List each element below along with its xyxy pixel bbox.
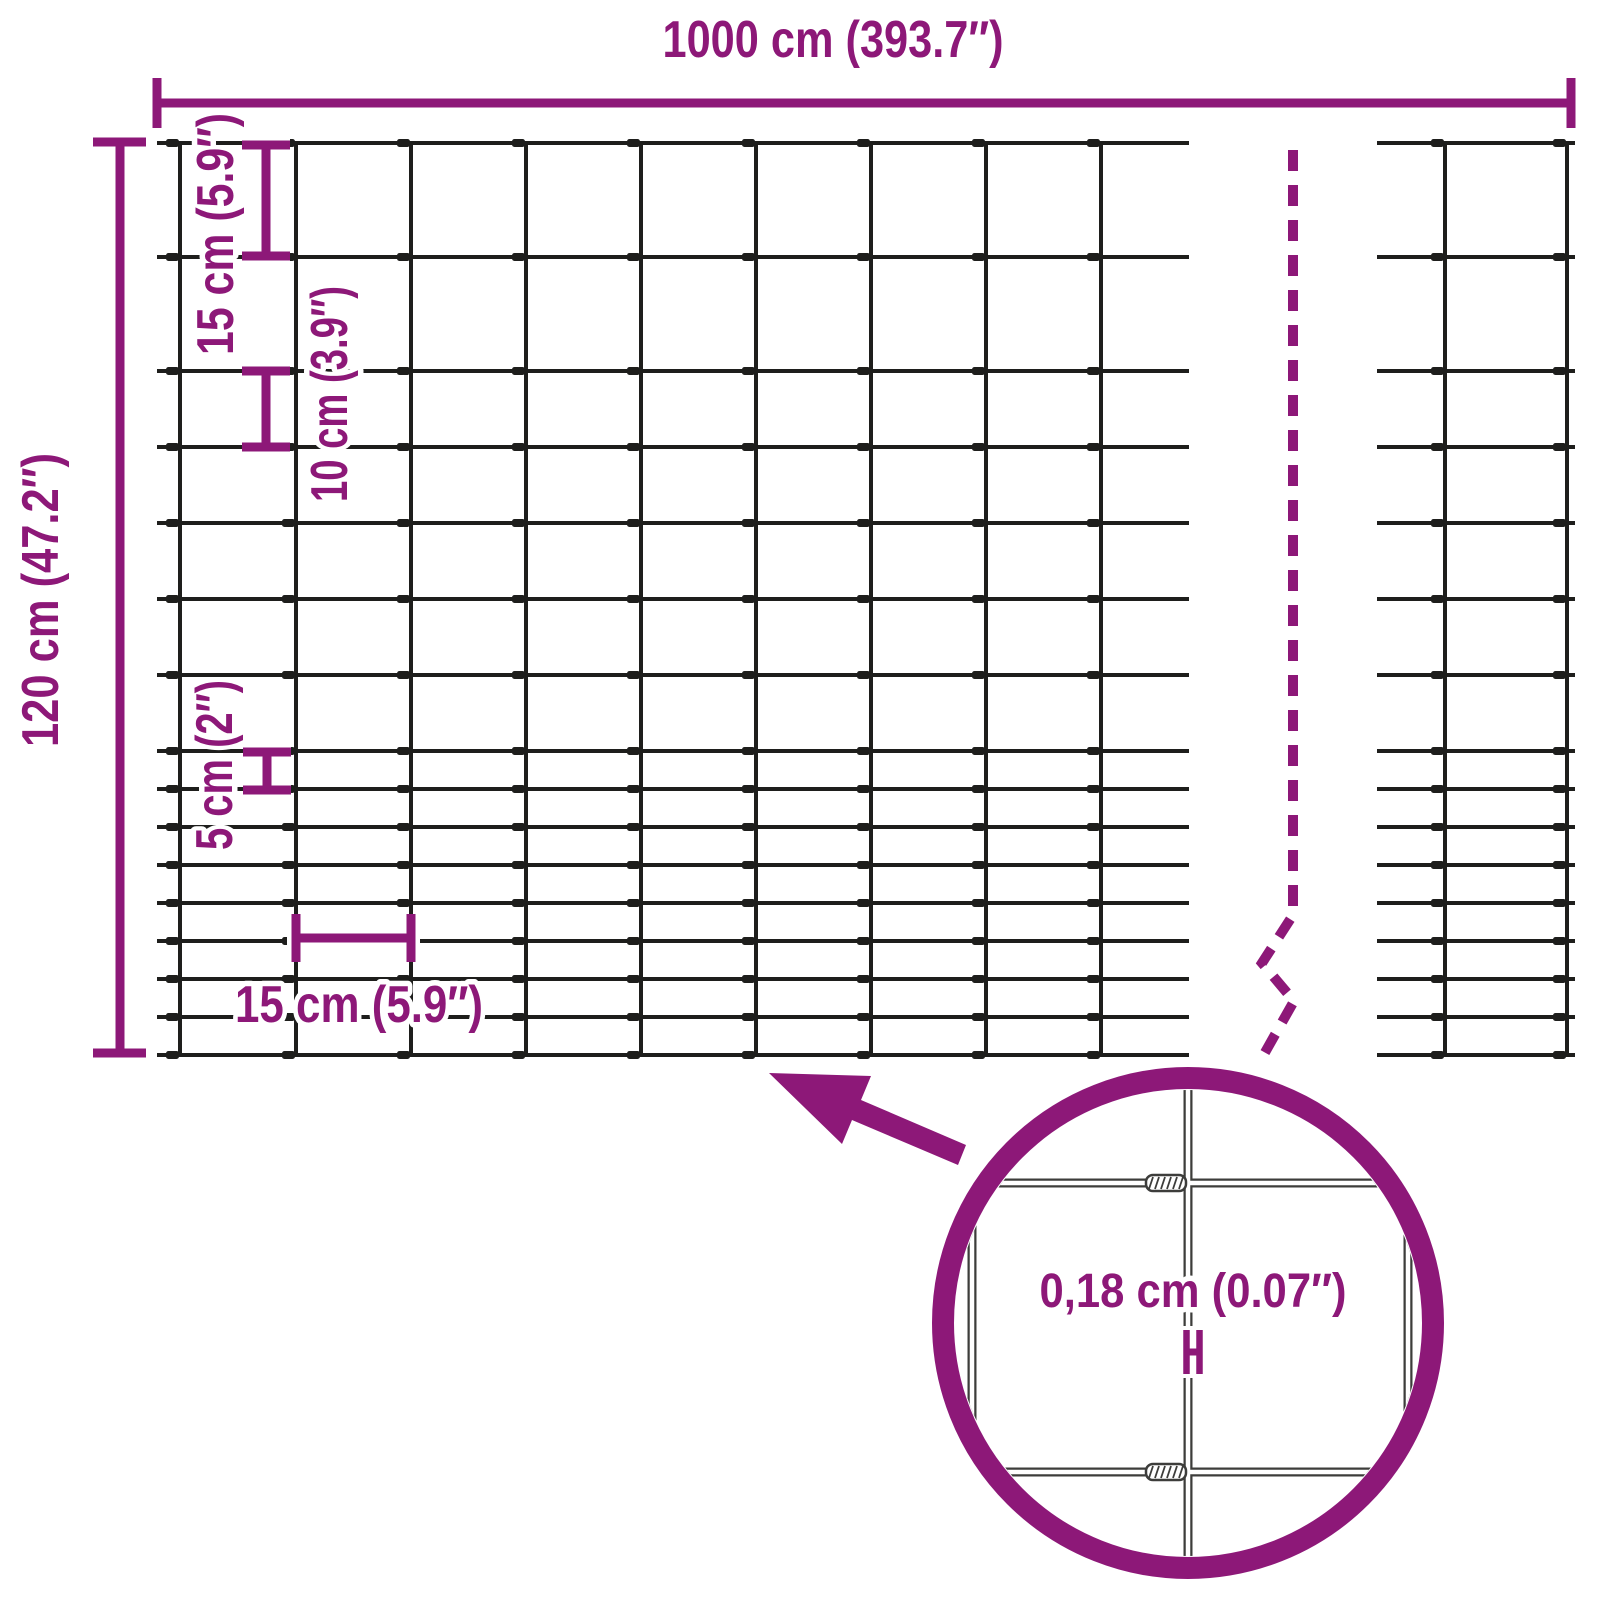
wire-knot-icon <box>627 367 640 375</box>
wire-knot-icon <box>1087 139 1100 147</box>
wire-knot-icon <box>742 823 755 831</box>
wire-knot-icon <box>397 139 410 147</box>
wire-knot-icon <box>972 595 985 603</box>
wire-knot-icon <box>857 861 870 869</box>
wire-knot-icon <box>512 899 525 907</box>
wire-knot-icon <box>1087 595 1100 603</box>
wire-knot-icon <box>972 367 985 375</box>
wire-knot-icon <box>166 671 179 679</box>
wire-knot-icon <box>742 747 755 755</box>
wire-knot-icon <box>627 975 640 983</box>
wire-knot-icon <box>512 823 525 831</box>
wire-knot-icon <box>742 139 755 147</box>
wire-knot-icon <box>166 253 179 261</box>
wire-knot-icon <box>857 595 870 603</box>
wire-knot-icon <box>166 367 179 375</box>
wire-knot-icon <box>1553 443 1566 451</box>
wire-knot-icon <box>166 139 179 147</box>
wire-knot-icon <box>1087 1051 1100 1059</box>
wire-knot-icon <box>1431 937 1444 945</box>
wire-knot-icon <box>627 823 640 831</box>
wire-knot-icon <box>512 861 525 869</box>
wire-knot-icon <box>627 747 640 755</box>
wire-knot-icon <box>1431 1013 1444 1021</box>
wire-knot-icon <box>166 595 179 603</box>
dimension-row-gap-middle: 10 cm (3.9″) <box>242 286 359 502</box>
wire-knot-icon <box>972 899 985 907</box>
wire-knot-icon <box>857 785 870 793</box>
wire-knot-icon <box>166 975 179 983</box>
wire-knot-icon <box>972 861 985 869</box>
wire-knot-icon <box>397 443 410 451</box>
wire-knot-icon <box>742 861 755 869</box>
wire-knot-icon <box>857 671 870 679</box>
wire-knot-icon <box>166 1013 179 1021</box>
wire-knot-icon <box>282 671 295 679</box>
wire-knot-icon <box>1553 671 1566 679</box>
wire-knot-icon <box>166 443 179 451</box>
wire-knot-icon <box>972 519 985 527</box>
wire-knot-icon <box>742 519 755 527</box>
wire-knot-icon <box>512 747 525 755</box>
wire-knot-icon <box>627 1051 640 1059</box>
wire-knot-icon <box>1553 519 1566 527</box>
wire-knot-icon <box>742 785 755 793</box>
wire-knot-icon <box>972 1013 985 1021</box>
wire-knot-icon <box>742 671 755 679</box>
row-gap-top-label: 15 cm (5.9″) <box>187 113 245 355</box>
wire-knot-icon <box>742 899 755 907</box>
wire-knot-icon <box>972 937 985 945</box>
diagram-canvas: 1000 cm (393.7″) 120 cm (47.2″) 15 cm (5… <box>0 0 1600 1600</box>
wire-knot-icon <box>742 595 755 603</box>
magnifier-arrow <box>769 1073 966 1165</box>
wire-knot-icon <box>857 899 870 907</box>
wire-knot-icon <box>1553 785 1566 793</box>
wire-knot-icon <box>282 519 295 527</box>
wire-knot-icon <box>1087 861 1100 869</box>
wire-knot-icon <box>512 937 525 945</box>
wire-knot-icon <box>1553 1051 1566 1059</box>
wire-thickness-marker <box>1178 1326 1208 1378</box>
wire-knot-icon <box>857 747 870 755</box>
wire-knot-icon <box>512 1013 525 1021</box>
magnifier-detail: 0,18 cm (0.07″) <box>940 1078 1436 1568</box>
break-line <box>1262 150 1294 1056</box>
wire-knot-icon <box>397 1051 410 1059</box>
wire-knot-icon <box>857 1051 870 1059</box>
dimension-column-gap: 15 cm (5.9″) <box>235 914 483 1034</box>
wire-knot-icon <box>166 785 179 793</box>
wire-knot-icon <box>397 519 410 527</box>
wire-knot-icon <box>512 785 525 793</box>
wire-knot-icon <box>1431 899 1444 907</box>
wire-knot-icon <box>397 899 410 907</box>
wire-knot-icon <box>1087 823 1100 831</box>
wire-knot-icon <box>397 861 410 869</box>
wire-knot-icon <box>397 595 410 603</box>
dimension-total-height: 120 cm (47.2″) <box>12 142 146 1053</box>
wire-knot-icon <box>1431 367 1444 375</box>
wire-knot-icon <box>627 443 640 451</box>
wire-knot-icon <box>1553 747 1566 755</box>
wire-knot-icon <box>512 519 525 527</box>
dimension-row-gap-top: 15 cm (5.9″) <box>187 113 290 355</box>
wire-knot-icon <box>512 253 525 261</box>
wire-knot-icon <box>282 823 295 831</box>
wire-knot-icon <box>627 519 640 527</box>
wire-knot-icon <box>972 823 985 831</box>
wire-knot-icon <box>857 975 870 983</box>
wire-knot-icon <box>1087 899 1100 907</box>
wire-knot-icon <box>857 1013 870 1021</box>
wire-knot-icon <box>1431 747 1444 755</box>
wire-knot-icon <box>972 975 985 983</box>
wire-knot-icon <box>627 595 640 603</box>
wire-knot-icon <box>397 253 410 261</box>
wire-knot-icon <box>627 899 640 907</box>
wire-knot-icon <box>166 899 179 907</box>
column-gap-label: 15 cm (5.9″) <box>235 976 483 1034</box>
dimension-row-gap-bottom: 5 cm (2″) <box>186 680 291 850</box>
wire-knot-icon <box>1087 1013 1100 1021</box>
wire-knot-icon <box>742 443 755 451</box>
wire-knot-icon <box>282 861 295 869</box>
wire-knot-icon <box>512 671 525 679</box>
wire-knot-icon <box>627 253 640 261</box>
wire-knot-icon <box>512 139 525 147</box>
wire-knot-icon <box>627 785 640 793</box>
wire-knot-icon <box>742 253 755 261</box>
row-gap-bottom-label: 5 cm (2″) <box>186 680 244 850</box>
wire-knot-icon <box>1553 1013 1566 1021</box>
wire-knot-icon <box>857 139 870 147</box>
wire-knot-icon <box>1087 747 1100 755</box>
wire-knot-icon <box>1431 139 1444 147</box>
wire-knot-icon <box>1146 1175 1186 1191</box>
wire-knot-icon <box>1431 519 1444 527</box>
wire-knot-icon <box>857 937 870 945</box>
wire-knot-icon <box>627 937 640 945</box>
wire-knot-icon <box>742 975 755 983</box>
wire-knot-icon <box>1431 1051 1444 1059</box>
row-gap-middle-label: 10 cm (3.9″) <box>301 286 359 502</box>
wire-knot-icon <box>1087 443 1100 451</box>
wire-knot-icon <box>166 519 179 527</box>
wire-knot-icon <box>857 253 870 261</box>
wire-knot-icon <box>1146 1464 1186 1480</box>
wire-knot-icon <box>742 1013 755 1021</box>
wire-knot-icon <box>397 671 410 679</box>
wire-knot-icon <box>166 823 179 831</box>
wire-knot-icon <box>742 367 755 375</box>
wire-knot-icon <box>282 899 295 907</box>
wire-knot-icon <box>1087 367 1100 375</box>
wire-knot-icon <box>1553 975 1566 983</box>
wire-knot-icon <box>972 139 985 147</box>
wire-knot-icon <box>857 367 870 375</box>
fence-mesh <box>157 139 1575 1059</box>
fence-dimension-diagram: 1000 cm (393.7″) 120 cm (47.2″) 15 cm (5… <box>0 0 1600 1600</box>
wire-knot-icon <box>512 443 525 451</box>
wire-knot-icon <box>742 937 755 945</box>
wire-knot-icon <box>166 1051 179 1059</box>
wire-knot-icon <box>972 747 985 755</box>
wire-knot-icon <box>1553 937 1566 945</box>
wire-knot-icon <box>1553 139 1566 147</box>
wire-knot-icon <box>857 519 870 527</box>
wire-knot-icon <box>1087 671 1100 679</box>
wire-knot-icon <box>1553 823 1566 831</box>
wire-knot-icon <box>1553 367 1566 375</box>
wire-knot-icon <box>397 367 410 375</box>
wire-knot-icon <box>627 139 640 147</box>
total-height-label: 120 cm (47.2″) <box>12 453 70 747</box>
wire-knot-icon <box>1087 253 1100 261</box>
wire-knot-icon <box>512 975 525 983</box>
wire-knot-icon <box>627 1013 640 1021</box>
wire-knot-icon <box>1431 595 1444 603</box>
wire-knot-icon <box>857 823 870 831</box>
wire-knot-icon <box>1431 823 1444 831</box>
wire-knot-icon <box>972 785 985 793</box>
wire-knot-icon <box>1087 519 1100 527</box>
wire-knot-icon <box>397 785 410 793</box>
wire-knot-icon <box>1553 899 1566 907</box>
wire-knot-icon <box>166 937 179 945</box>
wire-knot-icon <box>972 253 985 261</box>
wire-knot-icon <box>282 595 295 603</box>
wire-knot-icon <box>1553 861 1566 869</box>
wire-knot-icon <box>512 1051 525 1059</box>
wire-knot-icon <box>282 1051 295 1059</box>
total-length-label: 1000 cm (393.7″) <box>663 11 1004 69</box>
wire-knot-icon <box>166 747 179 755</box>
wire-knot-icon <box>1431 671 1444 679</box>
wire-knot-icon <box>1553 595 1566 603</box>
wire-knot-icon <box>742 1051 755 1059</box>
wire-knot-icon <box>1431 975 1444 983</box>
wire-thickness-label: 0,18 cm (0.07″) <box>1040 1265 1347 1318</box>
wire-knot-icon <box>512 595 525 603</box>
wire-knot-icon <box>512 367 525 375</box>
wire-knot-icon <box>1431 861 1444 869</box>
wire-knot-icon <box>972 671 985 679</box>
wire-knot-icon <box>1431 253 1444 261</box>
wire-knot-icon <box>1431 443 1444 451</box>
wire-knot-icon <box>627 671 640 679</box>
wire-knot-icon <box>397 747 410 755</box>
wire-knot-icon <box>972 1051 985 1059</box>
wire-knot-icon <box>1431 785 1444 793</box>
wire-knot-icon <box>627 861 640 869</box>
wire-knot-icon <box>1553 253 1566 261</box>
wire-knot-icon <box>1087 975 1100 983</box>
wire-knot-icon <box>397 823 410 831</box>
wire-knot-icon <box>1087 937 1100 945</box>
wire-knot-icon <box>1087 785 1100 793</box>
wire-knot-icon <box>972 443 985 451</box>
wire-knot-icon <box>166 861 179 869</box>
dimension-total-length: 1000 cm (393.7″) <box>157 11 1571 128</box>
wire-knot-icon <box>857 443 870 451</box>
